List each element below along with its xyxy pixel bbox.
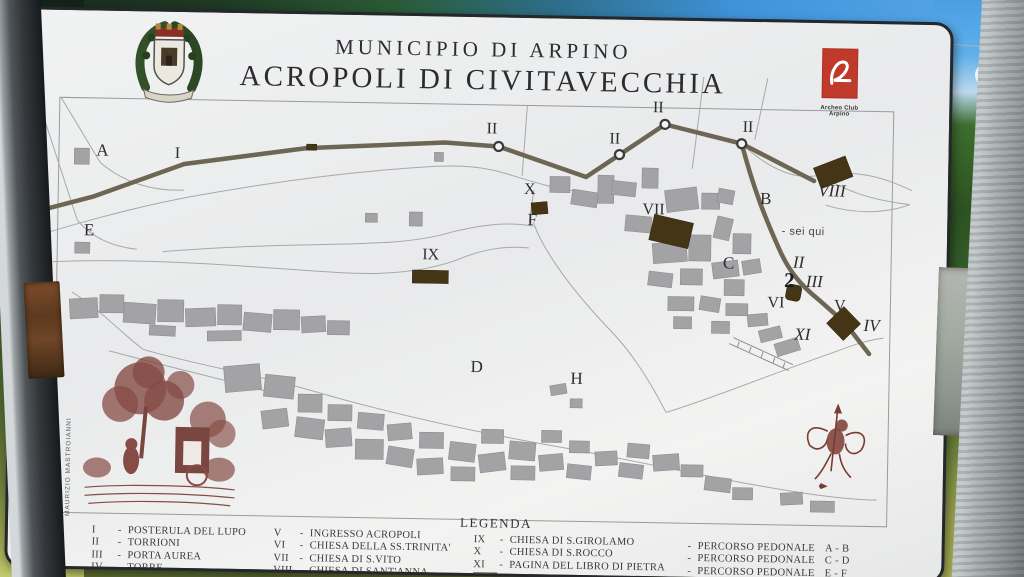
legend-column: -PERCORSO PEDONALEA - B-PERCORSO PEDONAL…	[677, 541, 850, 577]
legend-column: IX-CHIESA DI S.GIROLAMOX-CHIESA DI S.ROC…	[473, 534, 666, 577]
legend-column: I-POSTERULA DEL LUPOII-TORRIONIIII-PORTA…	[91, 524, 246, 576]
mura-poligonali-swatch	[473, 572, 497, 577]
photo-of-map-sign: MUNICIPIO DI ARPINO ACROPOLI DI CIVITAVE…	[0, 0, 1024, 577]
sign-inner: MUNICIPIO DI ARPINO ACROPOLI DI CIVITAVE…	[7, 9, 951, 577]
legend-columns: I-POSTERULA DEL LUPOII-TORRIONIIII-PORTA…	[7, 9, 951, 577]
legend-column: V-INGRESSO ACROPOLIVI-CHIESA DELLA SS.TR…	[273, 528, 451, 577]
legend-item: IV-TORRE	[91, 561, 245, 576]
map-sign-board: MUNICIPIO DI ARPINO ACROPOLI DI CIVITAVE…	[4, 6, 954, 577]
left-rusty-bracket	[24, 281, 65, 379]
legend-item: -PERCORSO PEDONALEE - F	[677, 565, 849, 577]
legend-item: VIII-CHIESA DI SANT'ANNA	[273, 565, 450, 577]
